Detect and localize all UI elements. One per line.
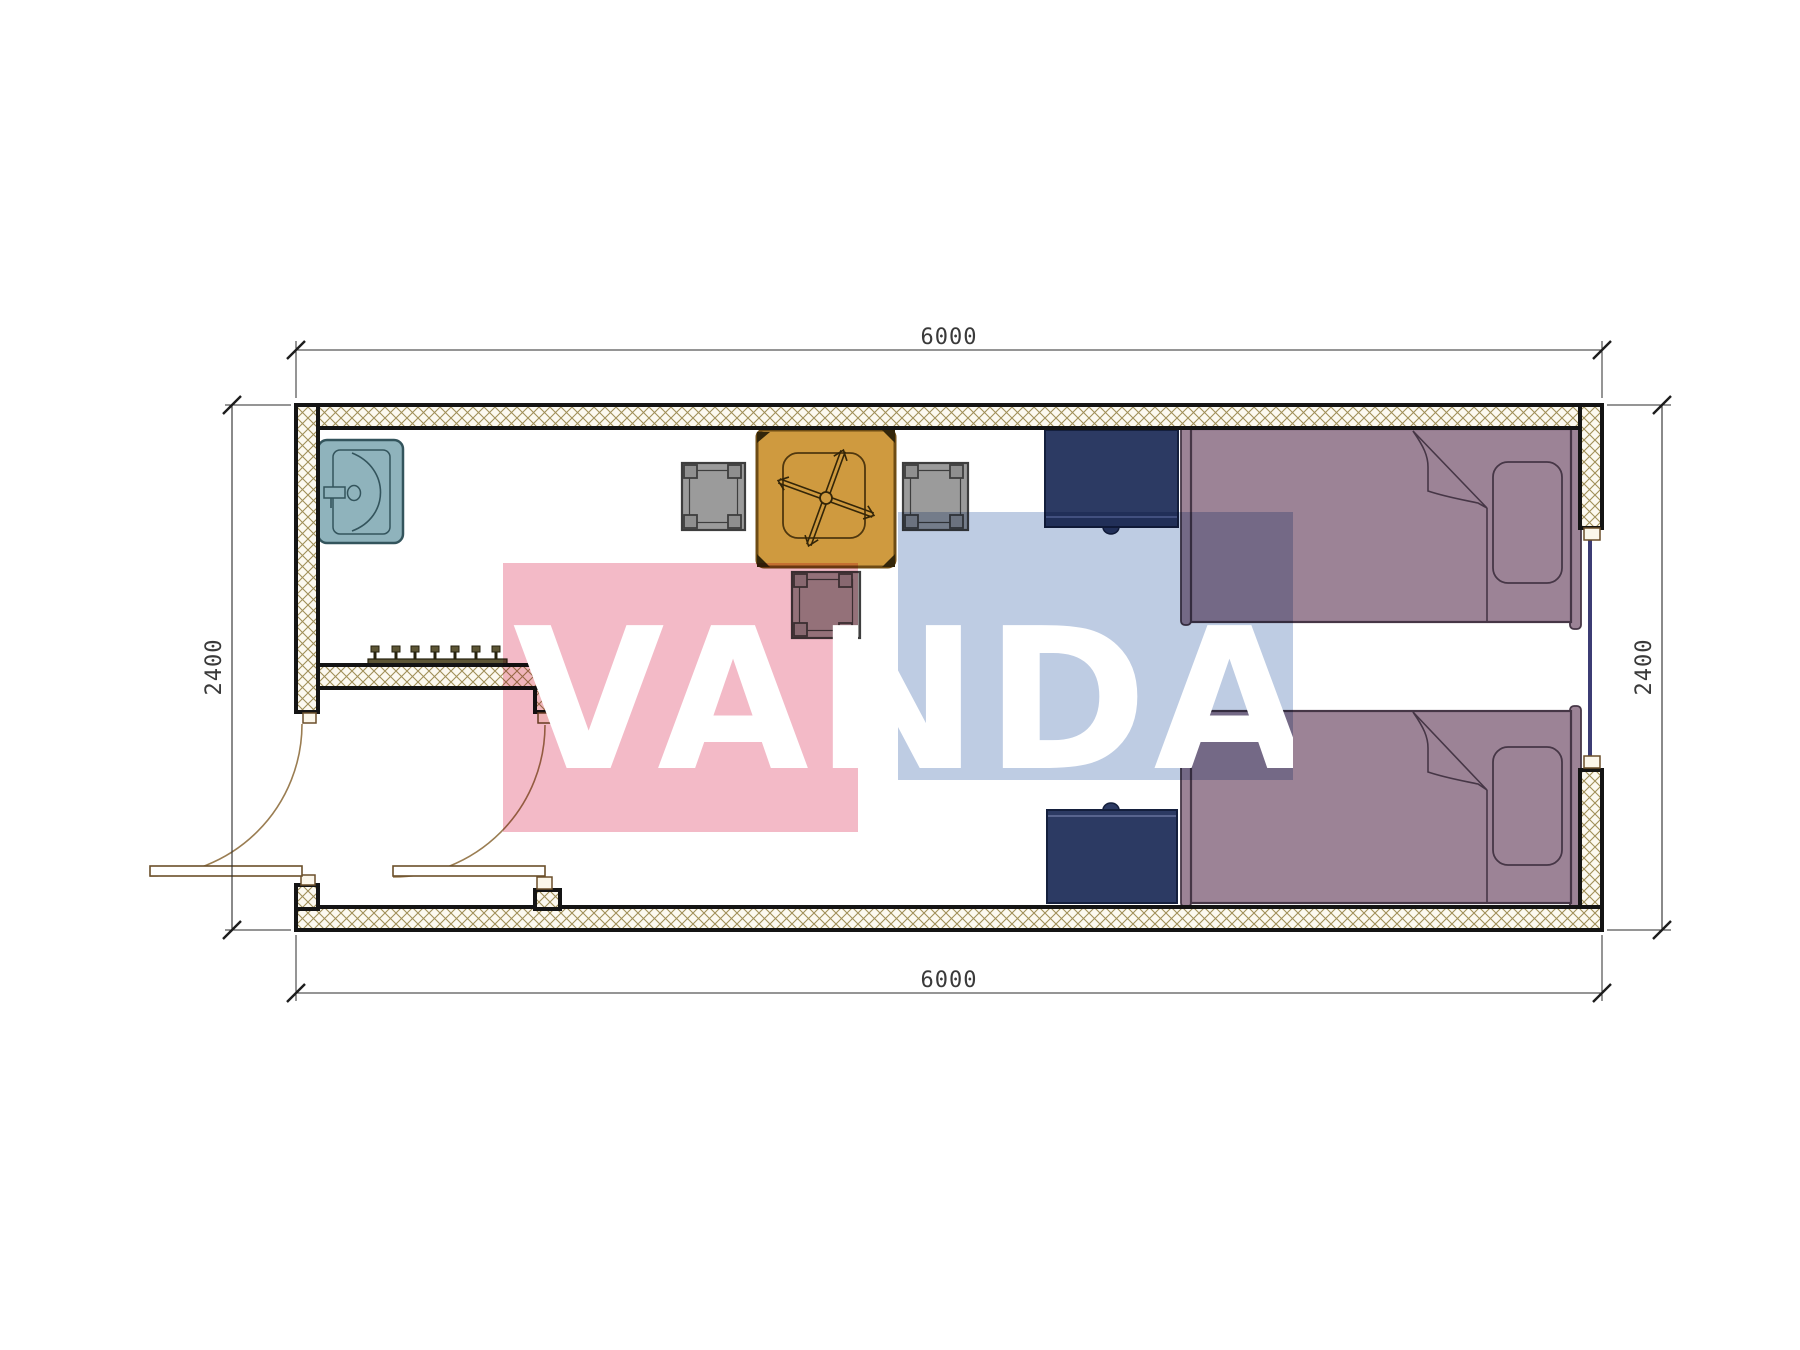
window (1588, 540, 1592, 758)
stool-left (682, 463, 745, 530)
door-leaf (150, 866, 302, 876)
dim-label-bottom: 6000 (921, 968, 978, 993)
door-leaf (393, 866, 545, 876)
dim-label-left: 2400 (202, 639, 227, 696)
nightstand-bottom (1047, 803, 1177, 903)
sink (318, 440, 403, 543)
wall-left (296, 405, 318, 712)
wall-stub-door (535, 890, 560, 909)
dim-label-right: 2400 (1632, 639, 1657, 696)
square-table (757, 430, 895, 567)
wall-top (296, 405, 1602, 428)
wall-stub-bottom-left (296, 885, 318, 909)
floor-plan-canvas: 6000 6000 2400 2400 VANDA VANDA (0, 0, 1800, 1350)
floor-plan-drawing: 6000 6000 2400 2400 VANDA VANDA (0, 0, 1800, 1350)
pillow (1493, 462, 1562, 583)
pillow (1493, 747, 1562, 865)
dim-label-top: 6000 (921, 325, 978, 350)
wall-bottom (296, 907, 1602, 930)
wall-right-upper (1580, 405, 1602, 528)
